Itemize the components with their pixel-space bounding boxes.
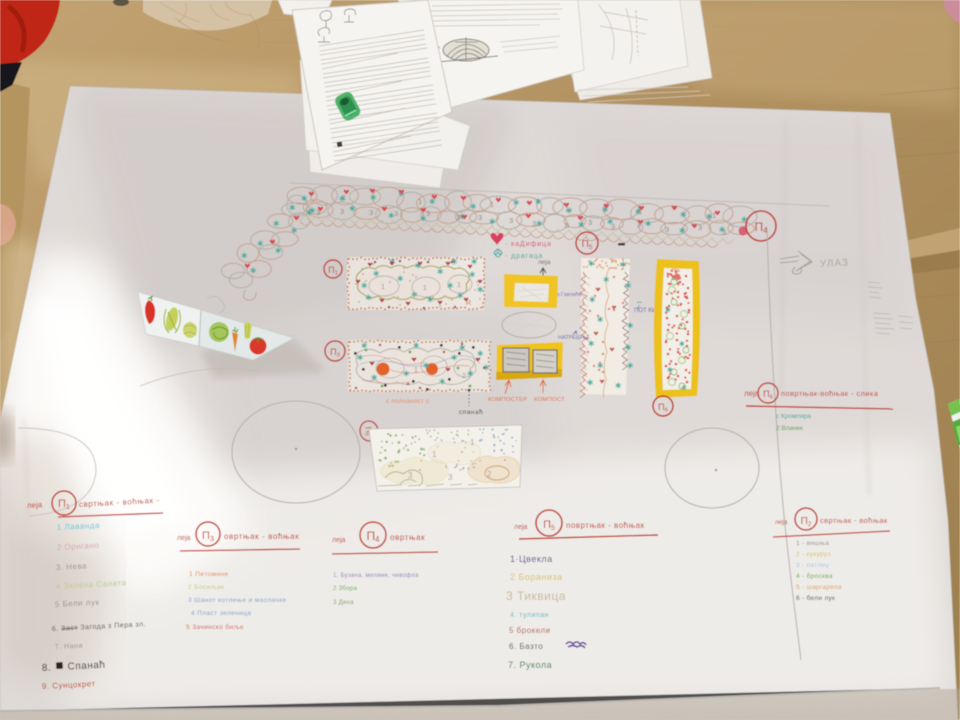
svg-text:УЛАЗ: УЛАЗ xyxy=(820,257,850,270)
svg-text:3: 3 xyxy=(448,473,453,482)
svg-text:- каДифица: - каДифица xyxy=(505,239,552,248)
svg-text:овртњак - воћњак: овртњак - воћњак xyxy=(224,532,299,541)
svg-text:1: 1 xyxy=(381,284,385,291)
svg-text:4. тулипан: 4. тулипан xyxy=(510,612,549,619)
svg-text:1: 1 xyxy=(565,204,569,213)
svg-text:3: 3 xyxy=(456,213,460,222)
svg-text:1 - вишња: 1 - вишња xyxy=(796,540,829,547)
svg-text:1: 1 xyxy=(457,282,461,289)
svg-text:1: 1 xyxy=(490,200,494,209)
svg-text:свртњак - воћњак: свртњак - воћњак xyxy=(820,516,888,525)
svg-text:6 - бели лук: 6 - бели лук xyxy=(796,594,835,602)
svg-text:3 Дина: 3 Дина xyxy=(333,600,354,606)
svg-text:1·Цвекла: 1·Цвекла xyxy=(510,554,553,564)
svg-text:6. Базто: 6. Базто xyxy=(509,642,543,651)
svg-text:2 Влачек: 2 Влачек xyxy=(776,425,803,432)
svg-text:3: 3 xyxy=(611,222,615,231)
svg-text:с полнаност с: с полнаност с xyxy=(386,399,430,405)
svg-text:повртњак - воћњак: повртњак - воћњак xyxy=(566,521,645,530)
svg-text:леја: леја xyxy=(332,537,346,544)
svg-text:3: 3 xyxy=(509,216,513,225)
svg-text:пњ: пњ xyxy=(672,268,680,274)
svg-text:3 Тиквица: 3 Тиквица xyxy=(506,589,566,603)
svg-text:3 Шанот котлење и маслачке: 3 Шанот котлење и маслачке xyxy=(188,597,287,604)
svg-text:леја: леја xyxy=(514,524,528,531)
svg-text:1: 1 xyxy=(470,438,475,447)
svg-text:3. Нева: 3. Нева xyxy=(56,561,88,572)
svg-text:7. Рукола: 7. Рукола xyxy=(508,660,552,670)
svg-text:3: 3 xyxy=(408,471,413,480)
svg-text:2 Босиљак: 2 Босиљак xyxy=(188,584,224,591)
svg-text:3: 3 xyxy=(588,218,592,227)
svg-text:5 - шаргарепа: 5 - шаргарепа xyxy=(796,584,842,591)
svg-text:1: 1 xyxy=(432,450,437,459)
svg-text:3: 3 xyxy=(340,207,344,216)
svg-text:1: 1 xyxy=(414,367,418,374)
svg-text:3: 3 xyxy=(722,228,726,237)
svg-text:1 Питомине: 1 Питомине xyxy=(189,571,229,578)
svg-text:спанаћ: спанаћ xyxy=(459,408,483,416)
svg-text:3 - патлиџ: 3 - патлиџ xyxy=(796,562,829,569)
svg-text:КОМПОСТ: КОМПОСТ xyxy=(534,397,565,403)
svg-text:4 - бросква: 4 - бросква xyxy=(796,572,833,580)
svg-text:3: 3 xyxy=(532,219,536,228)
svg-text:3: 3 xyxy=(637,220,641,229)
svg-text:1: 1 xyxy=(423,285,427,292)
svg-text:3: 3 xyxy=(665,225,669,234)
svg-text:3: 3 xyxy=(394,209,398,218)
svg-text:4 Пласт зеленица: 4 Пласт зеленица xyxy=(191,610,251,617)
svg-text:леја: леја xyxy=(27,500,43,510)
svg-text:2 Збора: 2 Збора xyxy=(333,586,358,592)
svg-text:R: R xyxy=(466,300,471,307)
svg-text:КОМПОСТЕР: КОМПОСТЕР xyxy=(488,397,527,403)
svg-text:7. Нана: 7. Нана xyxy=(55,643,83,651)
svg-text:3: 3 xyxy=(478,213,482,222)
svg-text:3: 3 xyxy=(426,209,430,218)
svg-text:овртњак: овртњак xyxy=(390,533,425,542)
svg-text:3: 3 xyxy=(698,223,702,232)
svg-text:с Кромпира: с Кромпира xyxy=(776,413,811,420)
svg-text:1: 1 xyxy=(712,211,716,220)
svg-text:з.Гавлиће: з.Гавлиће xyxy=(557,292,582,298)
svg-text:5 брокели: 5 брокели xyxy=(509,626,551,635)
svg-text:повртњак-воћњак - слика: повртњак-воћњак - слика xyxy=(781,389,879,398)
svg-text:2 - кукуруз: 2 - кукуруз xyxy=(796,551,831,558)
svg-text:2: 2 xyxy=(462,373,466,380)
svg-text:2: 2 xyxy=(487,470,492,479)
svg-text:леја: леја xyxy=(177,535,191,542)
svg-text:5 Зачинско биље: 5 Зачинско биље xyxy=(186,623,244,631)
svg-text:леја: леја xyxy=(538,259,551,266)
svg-text:НАТРЕШЊЕ: НАТРЕШЊЕ xyxy=(558,335,591,341)
svg-text:2 Бораниза: 2 Бораниза xyxy=(510,572,563,582)
svg-text:3: 3 xyxy=(369,208,373,217)
svg-text:3: 3 xyxy=(565,221,569,230)
svg-text:1: 1 xyxy=(638,207,642,216)
svg-text:1: 1 xyxy=(418,197,422,206)
svg-text:1. Бузача, мелине, чивофла: 1. Бузача, мелине, чивофла xyxy=(333,573,419,579)
svg-text:1: 1 xyxy=(342,193,346,202)
svg-text:3: 3 xyxy=(316,208,320,217)
svg-text:леја: леја xyxy=(775,519,788,526)
